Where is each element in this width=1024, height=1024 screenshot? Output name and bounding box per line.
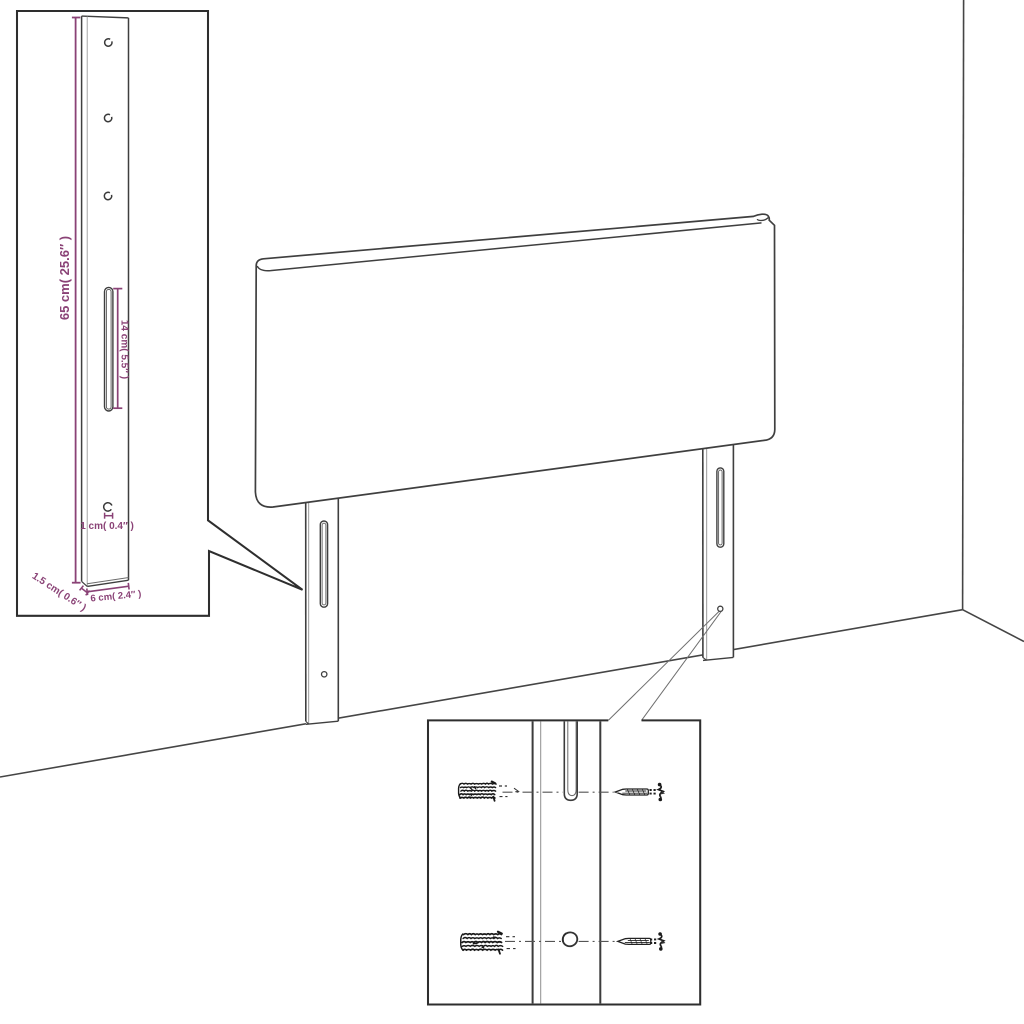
svg-text:1 cm( 0.4″ ): 1 cm( 0.4″ ) — [80, 521, 134, 532]
svg-text:65 cm( 25.6″ ): 65 cm( 25.6″ ) — [57, 236, 72, 320]
svg-text:14 cm( 5.5″ ): 14 cm( 5.5″ ) — [118, 320, 129, 379]
